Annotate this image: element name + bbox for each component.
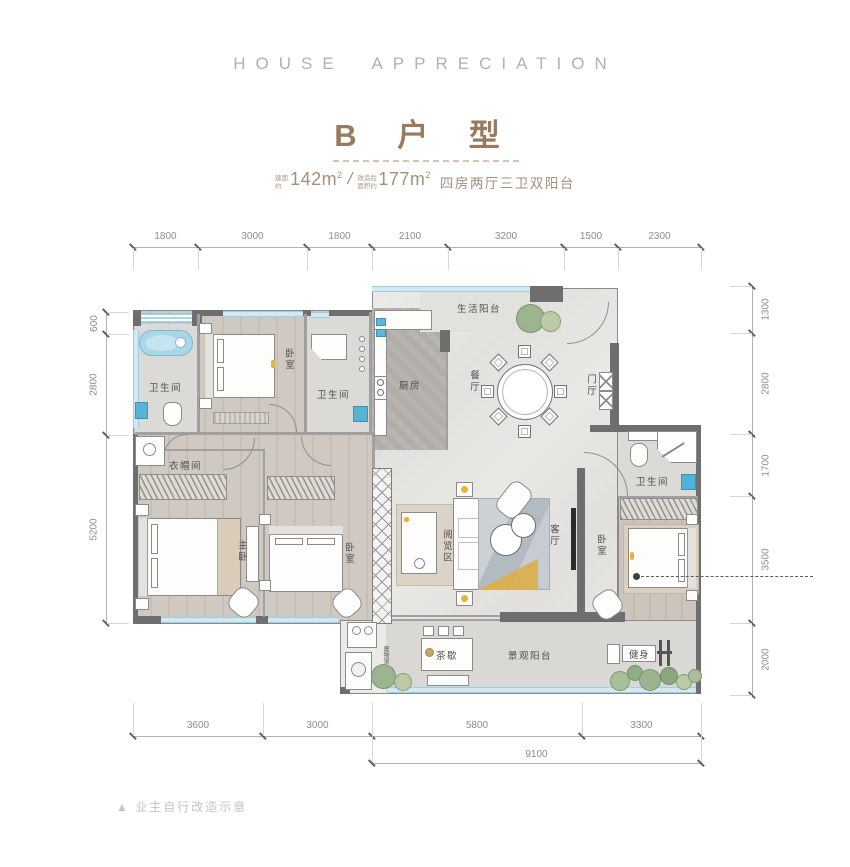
accent-marker (271, 360, 275, 368)
nightstand (259, 580, 271, 591)
toilet (163, 402, 182, 426)
dim-guide (107, 334, 129, 335)
room-label-bedroom2: 卧室 (341, 542, 355, 565)
wall-segment (133, 616, 161, 624)
area-value-1: 142m2 (290, 169, 343, 190)
dim-label: 3600 (187, 720, 209, 731)
partition (369, 312, 372, 432)
dining-chair (554, 385, 567, 398)
dim-guide (582, 703, 583, 736)
nightstand (135, 504, 149, 516)
dim-label: 1300 (761, 298, 772, 320)
layout-description: 四房两厅三卫双阳台 (440, 172, 575, 192)
partition (263, 451, 265, 617)
room-label-kitchen: 厨房 (399, 378, 421, 392)
wall-segment (199, 310, 223, 316)
fixture-dot (359, 366, 365, 372)
dim-line-left (106, 312, 107, 623)
sink (681, 474, 696, 490)
partition (372, 432, 375, 470)
wall-segment (133, 310, 141, 326)
nightstand (199, 398, 212, 409)
wardrobe (139, 474, 227, 500)
room-label-living: 客厅 (546, 524, 560, 547)
fixture-dot (352, 626, 361, 635)
wall-segment (440, 330, 450, 352)
dim-guide (107, 435, 129, 436)
dim-guide (730, 286, 752, 287)
nightstand (259, 514, 271, 525)
dim-guide (730, 623, 752, 624)
dim-label: 3200 (495, 231, 517, 242)
room-label-bedroom3: 卧室 (593, 534, 607, 557)
room-label-bath3: 卫生间 (636, 474, 669, 488)
dim-label: 5800 (466, 720, 488, 731)
kitchen-sink (376, 329, 386, 337)
sink (353, 406, 368, 422)
pillow (217, 339, 224, 363)
fixture-dot (359, 346, 365, 352)
bed-headboard (269, 526, 343, 535)
dim-line-right (752, 286, 753, 695)
bathtub-inner (145, 335, 179, 351)
wall-segment (530, 286, 563, 302)
dim-label: 2300 (648, 231, 670, 242)
speaker-dot (461, 595, 468, 602)
dim-guide (198, 248, 199, 270)
sink (135, 402, 148, 419)
dim-guide (730, 695, 752, 696)
bench-rug (213, 412, 269, 424)
dim-label: 600 (89, 315, 100, 332)
dim-guide (107, 623, 129, 624)
stool (143, 443, 156, 456)
stool (453, 626, 464, 636)
dim-guide (307, 248, 308, 270)
dim-label: 1700 (761, 454, 772, 476)
dim-label: 1500 (580, 231, 602, 242)
room-label-balcony: 景观阳台 (508, 648, 552, 662)
stool (423, 626, 434, 636)
pillow (307, 538, 335, 545)
dim-label: 2800 (761, 372, 772, 394)
plant-icon (688, 669, 702, 683)
plant-icon (639, 669, 661, 691)
dim-label: 3500 (761, 548, 772, 570)
pillow (151, 524, 158, 554)
dim-line-total (372, 763, 701, 764)
window (372, 286, 530, 292)
pillow (217, 367, 224, 391)
room-label-master: 主卧 (234, 540, 248, 563)
bench (427, 675, 469, 686)
dining-chair (481, 385, 494, 398)
dim-line-top (133, 247, 701, 248)
wall-segment (256, 616, 268, 624)
speaker-dot (461, 486, 468, 493)
slash-separator: / (348, 169, 353, 189)
desk-lamp (404, 517, 409, 522)
pillow (678, 533, 685, 556)
sliding-door (386, 615, 500, 617)
bed (269, 526, 343, 592)
window (309, 312, 330, 318)
dim-col-right: 1300 2800 1700 3500 2000 (754, 286, 778, 695)
room-label-bedroom1: 卧室 (281, 348, 295, 371)
dim-guide (448, 248, 449, 270)
dim-label: 5200 (89, 518, 100, 540)
partition (135, 432, 372, 435)
dim-label: 2100 (399, 231, 421, 242)
dim-guide (730, 434, 752, 435)
partition (446, 352, 448, 450)
tv (571, 508, 576, 570)
fixture-dot (364, 626, 373, 635)
dim-total-label: 9100 (372, 744, 701, 762)
dim-guide (618, 248, 619, 270)
fixture-dot (359, 336, 365, 342)
bed-headboard (687, 528, 696, 588)
fitness-box: 健身 (622, 645, 656, 662)
bed-headboard (139, 518, 148, 596)
room-label-foyer: 门厅 (583, 374, 597, 397)
sightline-dashed (641, 576, 813, 577)
area-label-2: 改造后面积约 (357, 175, 378, 191)
floorplan: 卫生间 卧室 卫生间 厨房 生活阳台 (133, 286, 701, 698)
nightstand (199, 323, 212, 334)
pillow (151, 558, 158, 588)
toilet (630, 443, 648, 467)
pillow (275, 538, 303, 545)
nightstand (686, 590, 698, 601)
washer-door (351, 662, 366, 677)
round-chair (511, 513, 536, 538)
page-title: B 户 型 (0, 110, 850, 155)
shelf-unit (347, 622, 377, 648)
wall-segment (329, 310, 372, 316)
room-label-bath2: 卫生间 (317, 387, 350, 401)
dim-line-bottom (133, 736, 701, 737)
pillow (678, 559, 685, 582)
sightline-dot (633, 573, 640, 580)
plant-icon (540, 311, 561, 332)
window (139, 313, 194, 323)
dining-chair (518, 425, 531, 438)
room-label-dining: 餐厅 (466, 370, 480, 393)
teapot (425, 648, 434, 657)
floorplan-page: HOUSE APPRECIATION B 户 型 建面约142m2/改造后面积约… (0, 0, 850, 867)
dim-guide (730, 333, 752, 334)
bathtub-drain (175, 337, 186, 348)
dim-guide (730, 496, 752, 497)
eyebrow-text: HOUSE APPRECIATION (0, 54, 850, 74)
dim-row-top: 1800 3000 1800 2100 3200 1500 2300 (133, 228, 701, 244)
dim-row-bottom: 3600 3000 5800 3300 (133, 717, 701, 733)
burner (377, 379, 384, 386)
area-label-1: 建面约 (275, 175, 290, 191)
partition (304, 314, 307, 432)
window (268, 617, 338, 623)
dim-guide (701, 248, 702, 270)
plant-icon (371, 664, 396, 689)
stool (438, 626, 449, 636)
fitness-equipment (607, 644, 620, 664)
dim-label: 1800 (328, 231, 350, 242)
bed-headboard (205, 334, 214, 398)
bookshelf (372, 468, 392, 624)
dim-col-left: 600 2800 5200 (82, 312, 106, 623)
window (221, 311, 305, 317)
kitchen-sink (376, 318, 386, 326)
desk-chair (414, 558, 425, 569)
dim-guide (133, 248, 134, 270)
rack-label: 置物架 (381, 646, 390, 664)
dim-label: 2800 (89, 373, 100, 395)
room-label-life-balcony: 生活阳台 (457, 301, 501, 315)
dim-label: 3000 (241, 231, 263, 242)
room-label-cloakroom: 衣帽间 (169, 458, 202, 472)
barbell-icon (657, 651, 672, 654)
shoe-cabinet (599, 391, 613, 410)
footer-note: ▲ 业主自行改造示意 (116, 798, 247, 815)
plant-icon (394, 673, 412, 691)
tea-label: 茶歇 (436, 648, 458, 662)
nightstand (686, 514, 698, 525)
room-label-bath1: 卫生间 (149, 380, 182, 394)
dim-guide (564, 248, 565, 270)
shoe-cabinet (599, 372, 613, 391)
dim-label: 2000 (761, 648, 772, 670)
burner (377, 389, 384, 396)
dim-label: 3300 (630, 720, 652, 731)
dashed-divider (333, 160, 519, 162)
dim-label: 3000 (306, 720, 328, 731)
dining-chair (518, 345, 531, 358)
dim-guide (133, 703, 134, 736)
dim-guide (372, 248, 373, 270)
fixture-dot (359, 356, 365, 362)
sliding-door (386, 619, 500, 621)
subtitle-row: 建面约142m2/改造后面积约177m2四房两厅三卫双阳台 (0, 169, 850, 192)
bed (205, 334, 275, 398)
fitness-label: 健身 (629, 647, 649, 661)
wardrobe (267, 476, 335, 500)
accent-marker (630, 552, 634, 560)
room-label-reading: 阅览区 (439, 529, 453, 564)
area-value-2: 177m2 (378, 169, 431, 190)
dim-guide (263, 703, 264, 736)
nightstand (135, 598, 149, 610)
dim-guide (107, 312, 129, 313)
dim-label: 1800 (154, 231, 176, 242)
dim-guide (701, 703, 702, 763)
